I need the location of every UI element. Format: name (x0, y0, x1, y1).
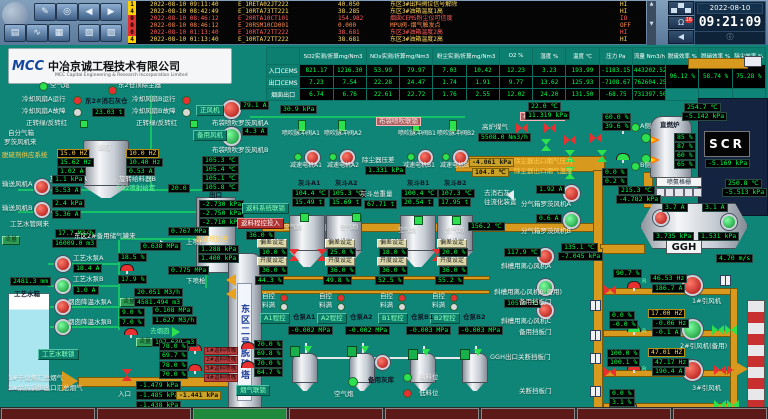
ggh-motor-a-i: 3.7 A (662, 203, 688, 212)
cool-a-run-dot (73, 96, 82, 105)
ggh-left-duct (600, 244, 645, 254)
pump-a1-full-dot (280, 303, 288, 311)
bfg-block-valve-2[interactable] (544, 123, 556, 133)
nozzle-2-label: 2#返料喷嘴 (204, 356, 238, 364)
mini-b1-dot (407, 153, 415, 161)
water-interlock-btn[interactable]: 工艺水联锁 (38, 349, 79, 360)
fan3-set[interactable]: 47.01 HZ (648, 348, 685, 357)
bag-outlet-label: 出口 (209, 192, 222, 199)
alarm-time: 2022-08-10 01:13:40 (136, 36, 238, 43)
cems-header: 流量 Nm3/h (632, 48, 665, 65)
cannon-a1-label: 空气炮 (284, 225, 302, 232)
alarm-row[interactable]: 12022-08-10 09:11:40E_1RETA02JT22240.050… (128, 1, 646, 8)
alarm-val: 38.681 (338, 36, 390, 43)
ggh-out-damper-label: GGH出口关断挡板门 (490, 354, 550, 361)
pump-b1-full-dot (398, 303, 406, 311)
bypass-valve2-fb: 70.0 % (159, 370, 188, 379)
hopper-total: 67.71 t (364, 200, 397, 209)
outlet-tri-a1[interactable] (304, 346, 312, 353)
pump-b2-full-dot (450, 303, 458, 311)
alarm-row[interactable]: 42022-08-10 01:13:40E_10RTA72TT22238.681… (128, 36, 646, 43)
gear-motor-a2-label: 减速电机A2 (327, 163, 359, 170)
alarm-tag: E_20RTA10CT101 (238, 15, 338, 22)
alarm-sev: 0 (128, 29, 136, 36)
spare-damper-1[interactable] (590, 300, 601, 311)
time-display: 09:21:09 (695, 15, 765, 31)
return-arrow-2 (226, 288, 236, 300)
prog-b2-btn[interactable]: B2程控 (430, 313, 460, 324)
taskbar-button[interactable] (577, 408, 671, 419)
spray-water-valve[interactable] (120, 264, 134, 271)
cool-p: 0.108 MPa (152, 306, 193, 315)
fan1-inlet-valve[interactable] (627, 281, 641, 288)
company-logo: MCC 中冶京诚工程技术有限公司 MCC Capital Engineering… (8, 48, 232, 84)
gear-motor-b1-label: 减速电机B1 (403, 163, 435, 170)
company-tagline: MCC Capital Engineering & Research Incor… (55, 73, 188, 78)
feeder-b-label: 旋转给料器B (119, 176, 156, 183)
cems-value: 1.74 (433, 77, 466, 89)
bell-icon[interactable]: Ω16 (668, 16, 694, 30)
main-fan-btn[interactable]: 正风机 (196, 105, 224, 116)
gun-valve-sp: 18.5 % (118, 253, 147, 262)
taskbar-button[interactable] (385, 408, 479, 419)
pulse-valve-b2-label: 喷吹脉冲阀B2 (437, 131, 475, 138)
edit-icon[interactable]: ✎ (34, 3, 56, 21)
tank-pump-a1-cone (296, 383, 314, 391)
cems-row-label: 出口CEMS (267, 77, 300, 89)
fan2-i: -0.1 A (652, 328, 681, 337)
pump-b2-auto-label: 自控 (432, 293, 445, 300)
bfg-p: 11.319 kPa (525, 111, 570, 120)
ggh-p2: 1.531 kPa (698, 232, 739, 241)
bfg-block-valve-1[interactable] (516, 123, 528, 133)
roots-fan-from-label: 罗茨风机来 (4, 139, 37, 146)
alarm-val: 40.050 (338, 1, 390, 8)
alarm-msg: 东区3#油箱温度2高 (390, 29, 620, 36)
keyboard-icon (744, 56, 762, 67)
process-water-pump-b[interactable] (55, 278, 71, 294)
tank-pump-a1-p: -0.002 MPa (288, 326, 333, 335)
back-icon[interactable]: ◀ (78, 3, 100, 21)
cems-value: 7.23 (300, 77, 333, 89)
outlet-tri-b2[interactable] (474, 349, 482, 356)
cems-value: 7.03 (433, 65, 466, 77)
ggh-p1: 3.735 kPa (653, 232, 694, 241)
scr-p: -5.169 kPa (705, 159, 750, 168)
alarm-row[interactable]: 02022-08-10 08:46:12E_20RTA10CT101154.98… (128, 15, 646, 22)
water-pump-a-label: 工艺水泵A (73, 255, 103, 262)
chimney-riser-duct (730, 288, 738, 407)
conveying-fan-b-label: 输送风机B (2, 205, 32, 212)
fan2-set[interactable]: 17.00 HZ (648, 309, 685, 318)
furnace-gas-valve[interactable] (590, 133, 602, 143)
chute-fan-c-label: 斜槽用离心风机C (501, 318, 551, 325)
lower-gun-p: 0.775 MPa (168, 266, 209, 275)
pump-a2-auto-dot (337, 294, 345, 302)
pulse-valve-b1-label: 喷吹脉冲阀B1 (398, 131, 436, 138)
alarm-row[interactable]: 02022-08-10 08:46:12E_20RSM10CD0010.000M… (128, 22, 646, 29)
chute-fan-a-t: 117.9 ℃ (504, 248, 541, 257)
cannon-spare-label: 空气炮 (334, 391, 354, 398)
silo-weight: 23.03 t (92, 108, 125, 117)
airbox-fan-b-i: 0.6 A (536, 214, 562, 223)
burner-flame-2 (651, 156, 660, 164)
alarm-msg: 烟囱CEMS粉尘仪可信度 (390, 15, 620, 22)
burner-flame-1 (651, 136, 660, 144)
date-display: 2022-08-10 (697, 3, 763, 14)
alarm-msg: 东区3#油箱温度1高 (390, 8, 620, 15)
cems-value: 13.62 (533, 77, 566, 89)
pump-a1-full-label: 料满 (262, 302, 275, 309)
apc-b1-bias-label[interactable]: 偏差设定 (377, 239, 407, 248)
fan2-r-label: R (642, 328, 647, 335)
to-fluid-label: 往流化装置 (484, 199, 517, 206)
water-pump-b-label: 工艺水泵B (73, 276, 103, 283)
gear-motor-b2-label: 减速电机B2 (440, 163, 472, 170)
fan3-i: 190.4 A (652, 367, 685, 376)
duct-t: 156.2 ℃ (468, 222, 505, 231)
cool-valve-fb: 7.0 % (119, 318, 145, 327)
gear-motor-a1-label: 减速电机A1 (290, 163, 322, 170)
alarm-sev: 4 (128, 8, 136, 15)
blow-fan-b-i: 4.3 A (242, 127, 268, 136)
filter-dp: 1.331 kPa (365, 166, 406, 175)
fan4-out-valve-2[interactable] (727, 400, 739, 407)
chimney-flow-arrow (734, 361, 748, 377)
silo-name: 东2#消石灰仓 (85, 98, 127, 105)
tower-dp2: 1.400 kPa (198, 254, 239, 263)
alarm-row[interactable]: 42022-08-10 08:42:49E_10RTA73TT22138.285… (128, 8, 646, 15)
furnace-in-p: -5.142 kPa (682, 112, 727, 121)
silo-top-filter-label: 东2仓顶除尘器 (118, 82, 161, 89)
fan3-block-valve[interactable] (604, 367, 616, 377)
burner-4: 65 % (674, 160, 696, 169)
fwd-a-indicator (80, 120, 88, 128)
fan3-r-label: R (642, 366, 647, 373)
cannon-b1-label: 空气炮 (398, 228, 416, 235)
apc-b1-open: 36.0 % (379, 266, 408, 275)
flue-src-1: 1#干熄焦汇总烟气 (8, 375, 63, 382)
pulse-valve-a2-label: 喷吹脉冲阀A2 (324, 131, 362, 138)
fan1-r-label: R (642, 278, 647, 285)
conveying-fan-b-pump[interactable] (34, 202, 50, 218)
cool-flow: 1.627 M3/h (152, 316, 197, 325)
alarm-st: IO (620, 15, 646, 22)
cems-value: 193.99 (566, 65, 599, 77)
cems-value: 12.02 (499, 89, 532, 101)
inlet-p1: -1.479 kPa (136, 381, 181, 390)
airbox-fan-b-label: 分气箱罗茨风机B (521, 228, 571, 235)
prog-b1-btn[interactable]: B1程控 (378, 313, 408, 324)
fan3-out-valve-1[interactable] (714, 365, 726, 375)
prog-a1-btn[interactable]: A1程控 (260, 313, 290, 324)
alarm-count-badge: 16 (685, 17, 693, 23)
prog-a2-btn[interactable]: A2程控 (317, 313, 347, 324)
taskbar-button[interactable] (1, 408, 95, 419)
ggh-out-damper[interactable] (590, 353, 601, 364)
pulse-valve-a1-label: 喷吹脉冲阀A1 (282, 131, 320, 138)
return-interlock-btn[interactable]: 返料系统联锁 (242, 203, 289, 214)
side-a-dot (631, 123, 640, 132)
rapper-label: 振打 (98, 144, 111, 151)
alarm-list[interactable]: 12022-08-10 09:11:40E_1RETA02JT22240.050… (128, 1, 646, 44)
scr-out-p: -5.513 kPa (722, 188, 767, 197)
cems-empty (666, 89, 699, 101)
chute-fan-b-label: 斜槽用离心风机B(备用) (494, 289, 562, 296)
chimney-pump-a-label: 烟囱降温水泵A (68, 299, 111, 306)
blow-interlock-btn[interactable]: 布袋喷吹联锁 (376, 117, 421, 126)
pump-b1-auto-dot (398, 294, 406, 302)
taskbar-button[interactable] (193, 408, 287, 419)
high-level-dot (403, 373, 412, 382)
pan-icon[interactable]: ▧ (78, 24, 100, 42)
cems-header: SO2实测/折算mg/Nm3 (300, 48, 367, 65)
alarm-val: 38.285 (338, 8, 390, 15)
bfg-block-valve-3[interactable] (564, 135, 576, 145)
apc-b1-fb: 52.5 % (375, 276, 404, 285)
tank-label: 工艺水箱 (14, 291, 40, 298)
air-tank-label: 东区2#备用储气罐来 (74, 233, 136, 240)
inlet-p2: -1.485 kPa (136, 391, 181, 400)
gas-interlock-btn[interactable]: 烟气联锁 (236, 385, 270, 396)
bottom-taskbar (0, 407, 768, 419)
return-valve-1[interactable] (289, 249, 299, 261)
nozzle-valve-2[interactable] (241, 361, 255, 368)
ggh-motor-b-i: 3.1 A (702, 203, 728, 212)
nozzle-valve-1[interactable] (241, 342, 255, 349)
spare-fan-btn[interactable]: 备用风机 (193, 130, 227, 141)
ggh-motor-b-icon[interactable] (721, 214, 737, 230)
bfg-valve-a-fb: 39.6 % (602, 122, 631, 131)
cems-value: 22.61 (366, 89, 399, 101)
cems-header: 温度 ℃ (566, 48, 599, 65)
trend-icon[interactable]: ∿ (26, 24, 48, 42)
bypass-valve1-fb: 69.7 % (159, 351, 188, 360)
high-level-label: 高料位 (419, 374, 439, 381)
gate-box-a2[interactable] (347, 346, 357, 357)
lower-gun-label: 下喷枪 (186, 278, 206, 285)
alarm-msg: MPU阀-烟气触发点 (390, 22, 620, 29)
conveying-fan-a-pump[interactable] (34, 179, 50, 195)
taskbar-button[interactable] (673, 408, 767, 419)
mini-b2-dot (442, 153, 450, 161)
forward-icon[interactable]: ▶ (100, 3, 122, 21)
top-toolbar: ✎◎◀▶▤∿▦▧▨ 12022-08-10 09:11:40E_1RETA02J… (0, 0, 768, 46)
cems-value: 24.20 (533, 89, 566, 101)
tank-pump-b1-name: 仓泵B1 (411, 314, 433, 321)
fan1-i: 186.7 A (652, 284, 685, 293)
alarm-tag: E_10RTA72TT222 (238, 29, 338, 36)
cems-value: 131.50 (566, 89, 599, 101)
blow-fan-a-i: 79.1 A (240, 101, 269, 110)
alarm-row[interactable]: 02022-08-10 01:13:40E_10RTA72TT22238.681… (128, 29, 646, 36)
flue-src-2: 2#余热锅炉出口汇总烟气 (8, 385, 83, 392)
taskbar-button[interactable] (481, 408, 575, 419)
doc-icon[interactable]: ▤ (4, 24, 26, 42)
alarm-st: HI (620, 8, 646, 15)
apc-b2-bias-label[interactable]: 偏差设定 (437, 239, 467, 248)
cool-b-run-dot (182, 96, 191, 105)
dust-out-p-label: 除尘器出口烟气压力 (514, 158, 573, 165)
tower-dp-label: 脱硫塔压差 (196, 236, 229, 243)
pump-a2-full-label: 料满 (319, 302, 332, 309)
alarm-val: 0.000 (338, 22, 390, 29)
alarm-msg: 东区3#油箱温度2高 (390, 36, 620, 43)
outlet-tri-a2[interactable] (361, 346, 369, 353)
cems-value: 3.23 (533, 65, 566, 77)
cems-table: SO2实测/折算mg/Nm3NOx实测/折算mg/Nm3粉尘实测/折算mg/Nm… (266, 47, 766, 101)
alarm-st: HI (620, 1, 646, 8)
alarm-time: 2022-08-10 08:46:12 (136, 22, 238, 29)
spare-silo-motor[interactable] (375, 355, 390, 370)
search-icon[interactable]: ◎ (56, 3, 78, 21)
mini-a2-dot (329, 153, 337, 161)
airbox-fan-a-i: 1.92 A (536, 185, 565, 194)
chimney-stack (747, 300, 765, 407)
apc-b2-open-label[interactable]: 开度设定 (437, 257, 467, 266)
ggh-in-p: -7.045 kPa (558, 252, 603, 261)
bfg-label: 高炉煤气 (482, 124, 508, 131)
hopper-total-label: 灰斗总重量 (360, 191, 393, 198)
blow-roots-fan-a-pump[interactable] (222, 100, 241, 119)
blow-air-header (250, 116, 465, 118)
conveying-fan-a-label: 输送风机A (2, 181, 32, 188)
side-b-label: B侧 (640, 162, 651, 169)
dust-out-p: -4.061 kPa (469, 158, 514, 167)
tank-pump-a1-name: 仓泵A1 (293, 314, 316, 321)
cems-row-label: 烟囱出口 (267, 89, 300, 101)
fan2-out-valve-1[interactable] (712, 325, 724, 335)
apc-a1-bias-label[interactable]: 偏差设定 (257, 239, 287, 248)
water-pump-b-i: 1.0 A (73, 286, 99, 295)
cool-valve-sp: 9.0 % (119, 308, 145, 317)
dust-out-t: 104.8 ℃ (472, 168, 509, 177)
hopper-b1-gate (414, 216, 423, 225)
table-icon[interactable]: ▦ (48, 24, 70, 42)
pump-a2-auto-label: 自控 (319, 293, 332, 300)
furnace-top-duct (688, 58, 748, 69)
alarm-tag: E_20RSM10CD001 (238, 22, 338, 29)
alarm-st: HI (620, 36, 646, 43)
damper-spare1-label: 备用挡板门 (519, 299, 552, 306)
apc-a2-open: 36.0 % (327, 266, 356, 275)
inlet-damper-valve[interactable] (122, 369, 132, 381)
furnace-vent-valve[interactable] (597, 150, 607, 162)
alarm-scrollbar[interactable]: ▲▼ (647, 1, 656, 45)
tank-level: 2481.3 mm (10, 277, 51, 286)
alarm-time: 2022-08-10 08:42:49 (136, 8, 238, 15)
fan1-block-valve[interactable] (604, 285, 616, 295)
fan2-out-valve-2[interactable] (725, 325, 737, 335)
taskbar-button[interactable] (97, 408, 191, 419)
taskbar-button[interactable] (289, 408, 383, 419)
to-chimney-label: 去烟囱 (150, 328, 170, 335)
fan1-out-damper[interactable] (720, 275, 731, 286)
alarm-st: OFF (620, 22, 646, 29)
fan4-out-valve-1[interactable] (714, 400, 726, 407)
cooling-water-valve[interactable] (124, 328, 138, 335)
tank-pump-b2-cone (466, 383, 484, 391)
conveying-fan-b-p: 2.4 kPa (52, 199, 85, 208)
tank-pump-b2-name: 仓泵B2 (463, 314, 485, 321)
spare-damper-2[interactable] (590, 330, 601, 341)
damper-spare2-label: 备用挡板门 (519, 329, 552, 336)
mini-a1-dot (294, 153, 302, 161)
tank-pump-a1-vessel (292, 353, 318, 383)
cems-value: 22.72 (400, 89, 433, 101)
apc-a1-open-label[interactable]: 开度设定 (257, 257, 287, 266)
cems-value: 1.76 (433, 89, 466, 101)
cems-value: 821.17 (300, 65, 333, 77)
cems-value: 731397.50 (632, 89, 665, 101)
apc-a1-fb: 44.3 % (255, 276, 284, 285)
igniter-a-dot (641, 133, 651, 143)
cems-value: 1216.30 (333, 65, 366, 77)
side-b-dot (631, 162, 640, 171)
ammonia-grid-cells (656, 188, 702, 197)
fwd-rev-a: 正转绿/反转红 (26, 120, 67, 127)
nozzle-valve1-fb: 69.8 % (254, 349, 283, 358)
process-water-pump-a[interactable] (55, 256, 71, 272)
fan2-label: 2#引风机(备用) (680, 343, 727, 350)
info-icon[interactable]: ⓘ (695, 31, 765, 42)
alarm-time: 2022-08-10 08:46:12 (136, 15, 238, 22)
cut-damper[interactable] (590, 386, 601, 397)
hopper-b2-w: 17.95 t (438, 198, 471, 207)
bfg-vent-valve-1[interactable] (541, 139, 551, 151)
apc-a2-bias-label[interactable]: 偏差设定 (325, 239, 355, 248)
fan3-valve-fb: 100.1 % (607, 358, 640, 367)
fan1-valve-sp: 90.7 % (613, 269, 642, 278)
low-level-dot (403, 389, 412, 398)
pump-b1-auto-label: 自控 (380, 293, 393, 300)
cannon-spare-dot (348, 377, 358, 387)
cems-value: 6.74 (300, 89, 333, 101)
pump-a1-auto-dot (280, 294, 288, 302)
cems-value: -1183.15 (599, 65, 632, 77)
outlet-tri-b1[interactable] (422, 349, 430, 356)
pump-a1-auto-label: 自控 (262, 293, 275, 300)
hopper-b2-name: 灰斗B2 (444, 180, 466, 187)
gate-box-b1[interactable] (408, 349, 418, 360)
sorbent-supply-btn[interactable]: 脱硫剂供应系统 (2, 152, 48, 159)
bypass-valve-2[interactable] (188, 364, 202, 371)
apc-b1-open-label[interactable]: 开度设定 (377, 257, 407, 266)
water-pump-a-i: 18.4 A (73, 264, 102, 273)
blow-fan-a-p: 30.9 kPa (280, 105, 317, 114)
zoom-icon[interactable]: ▨ (100, 24, 122, 42)
gate-box-b2[interactable] (460, 349, 470, 360)
apc-a2-fb: 49.8 % (323, 276, 352, 285)
network-icon[interactable] (668, 1, 694, 15)
bfg-control-valve-b[interactable] (616, 153, 630, 160)
return-prog-btn[interactable]: 返料程控投入 (237, 218, 284, 229)
cems-value: 22.28 (366, 77, 399, 89)
flow-tag-1: 流量 (2, 236, 20, 245)
furnace-name: 直燃炉 (660, 122, 680, 129)
mcc-logo-mark: MCC (12, 59, 44, 74)
hopper-a2-w: 15.69 t (329, 198, 362, 207)
cems-value: 9.77 (499, 77, 532, 89)
gate-box-a1[interactable] (290, 346, 300, 357)
speaker-icon[interactable] (668, 30, 694, 44)
side-a-label: A侧 (640, 123, 651, 130)
tank-pump-a2-p: -0.002 MPa (345, 326, 390, 335)
bfg-flow: 5508.0 Nm3/h (478, 133, 531, 142)
alarm-sev: 0 (128, 15, 136, 22)
apc-a2-open-label[interactable]: 开度设定 (325, 257, 355, 266)
nozzle-valve2-fb: 64.7 % (254, 368, 283, 377)
